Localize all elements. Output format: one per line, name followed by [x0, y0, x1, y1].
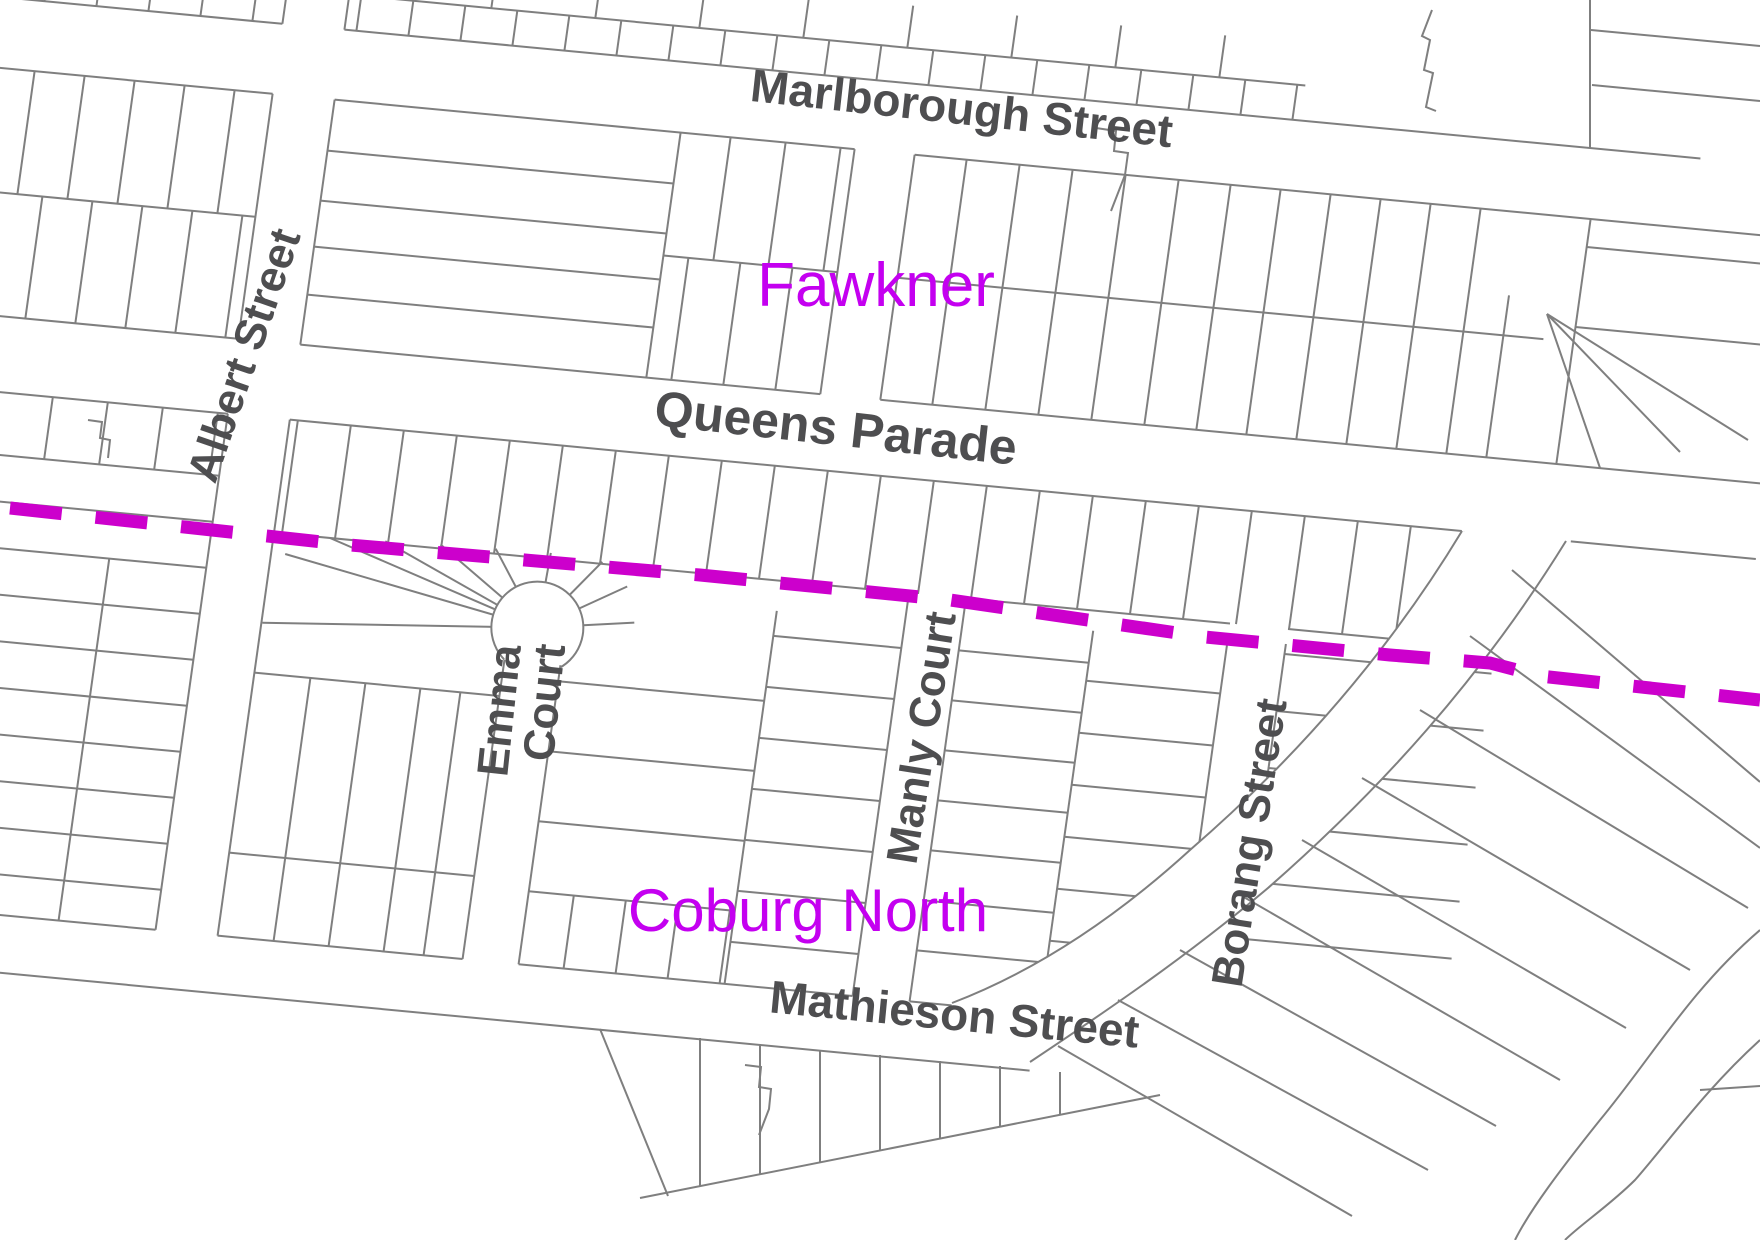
map-viewport: Marlborough Street Queens Parade Mathies…	[0, 0, 1760, 1240]
suburb-label-coburg-north: Coburg North	[628, 877, 988, 944]
map-canvas: Marlborough Street Queens Parade Mathies…	[0, 0, 1760, 1240]
suburb-label-fawkner: Fawkner	[757, 251, 995, 320]
